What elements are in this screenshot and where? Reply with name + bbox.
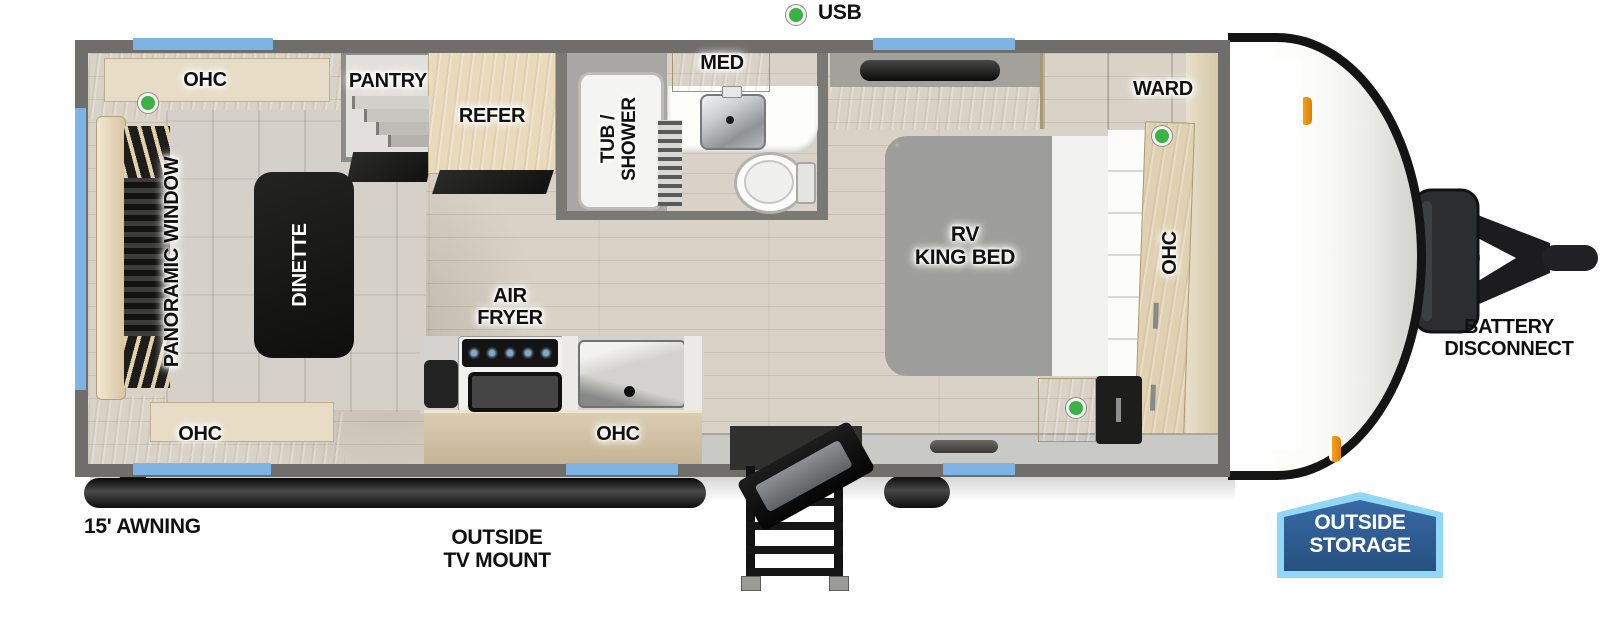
toilet-tank	[796, 162, 816, 204]
pantry-step-4	[388, 135, 429, 147]
pantry-label: PANTRY	[343, 71, 433, 93]
air-fryer-label: AIR FRYER	[450, 286, 570, 329]
counter-marble-right	[684, 336, 702, 412]
ward-label: WARD	[1118, 79, 1208, 101]
panoramic-window-label: PANORAMIC WINDOW	[162, 142, 190, 382]
window-bottom-kitchen	[566, 463, 678, 475]
step-foot-right	[829, 576, 849, 591]
ohc-rear-bottom-label: OHC	[155, 424, 245, 446]
range-cooktop	[462, 339, 558, 367]
landing-grab-bar	[930, 440, 998, 453]
bed-line1: RV	[895, 224, 1035, 247]
marker-light-bottom	[1329, 436, 1341, 462]
a-frame	[1470, 212, 1550, 308]
outside-storage-label: OUTSIDE STORAGE	[1284, 512, 1436, 557]
tub-shower-line2: SHOWER	[620, 79, 641, 199]
kitchen-trash-unit	[424, 360, 458, 408]
window-top-bedroom	[873, 38, 1015, 50]
window-bottom-rear	[133, 463, 271, 475]
oven-window	[468, 372, 562, 412]
refrigerator-base	[432, 170, 554, 194]
marker-light-top	[1300, 97, 1312, 125]
indicator-dot-nightstand	[1066, 398, 1086, 418]
outside-storage-line2: STORAGE	[1284, 535, 1436, 558]
burner-5	[540, 347, 552, 359]
pantry-base-shadow	[347, 152, 433, 182]
step-rung-3	[746, 546, 843, 554]
burner-1	[468, 347, 480, 359]
pantry-step-2	[364, 109, 429, 122]
bathroom-faucet	[722, 86, 742, 98]
door-awning-tube	[884, 476, 950, 508]
step-rung-4	[746, 568, 843, 576]
battery-line2: DISCONNECT	[1420, 339, 1598, 361]
indicator-dot-usb	[786, 5, 806, 25]
tub-shower-line1: TUB /	[599, 79, 620, 199]
battery-line1: BATTERY	[1420, 317, 1598, 339]
air-fryer-line1: AIR	[450, 286, 570, 308]
air-fryer-line2: FRYER	[450, 308, 570, 330]
door-handle-1	[1153, 303, 1159, 329]
shower-glass-door	[658, 120, 682, 206]
pantry-step-1	[352, 96, 429, 109]
window-top-rear	[133, 38, 273, 50]
toilet-seat	[744, 160, 794, 204]
ohc-bedroom-label: OHC	[1160, 208, 1184, 298]
coupler	[1542, 245, 1598, 271]
step-foot-left	[741, 576, 761, 591]
dinette-label: DINETTE	[290, 200, 316, 330]
counter-marble-left	[562, 336, 578, 412]
burner-2	[486, 347, 498, 359]
kitchen-faucet	[624, 386, 635, 397]
ohc-kitchen-label: OHC	[573, 424, 663, 446]
bedroom-black-cabinet	[1096, 376, 1142, 444]
panoramic-window-frame	[96, 116, 126, 400]
tv-mount-line2: TV MOUNT	[407, 550, 587, 573]
rv-king-bed-label: RV KING BED	[895, 224, 1035, 269]
floorplan-canvas: DINETTE PANORAMIC WINDOW OHC OHC PANTRY …	[0, 0, 1600, 634]
bed-line2: KING BED	[895, 247, 1035, 270]
ohc-rear-top-label: OHC	[160, 70, 250, 92]
bed-sheet	[1052, 136, 1112, 376]
tv-bracket	[860, 60, 1000, 81]
usb-label: USB	[818, 2, 888, 25]
burner-3	[504, 347, 516, 359]
door-handle-2	[1150, 385, 1156, 411]
outside-storage-line1: OUTSIDE	[1284, 512, 1436, 535]
awning-label: 15' AWNING	[84, 516, 244, 539]
med-label: MED	[682, 53, 762, 75]
tub-shower-label: TUB / SHOWER	[599, 79, 645, 199]
burner-4	[522, 347, 534, 359]
tv-mount-label: OUTSIDE TV MOUNT	[407, 527, 587, 572]
bathroom-drain	[726, 116, 734, 124]
bedroom-front-shelf	[830, 87, 1042, 129]
awning-tube	[84, 478, 706, 508]
indicator-dot-rear	[138, 93, 158, 113]
kitchen-sink	[578, 340, 686, 408]
window-rear-wall	[75, 108, 86, 390]
window-bottom-bedroom	[943, 463, 1015, 475]
battery-disconnect-label: BATTERY DISCONNECT	[1420, 317, 1598, 360]
tv-mount-line1: OUTSIDE	[407, 527, 587, 550]
pantry-step-3	[376, 122, 429, 135]
cabinet-handle	[1116, 398, 1121, 422]
refer-label: REFER	[447, 106, 537, 128]
indicator-dot-ward	[1152, 126, 1172, 146]
wall-right	[1218, 40, 1230, 477]
